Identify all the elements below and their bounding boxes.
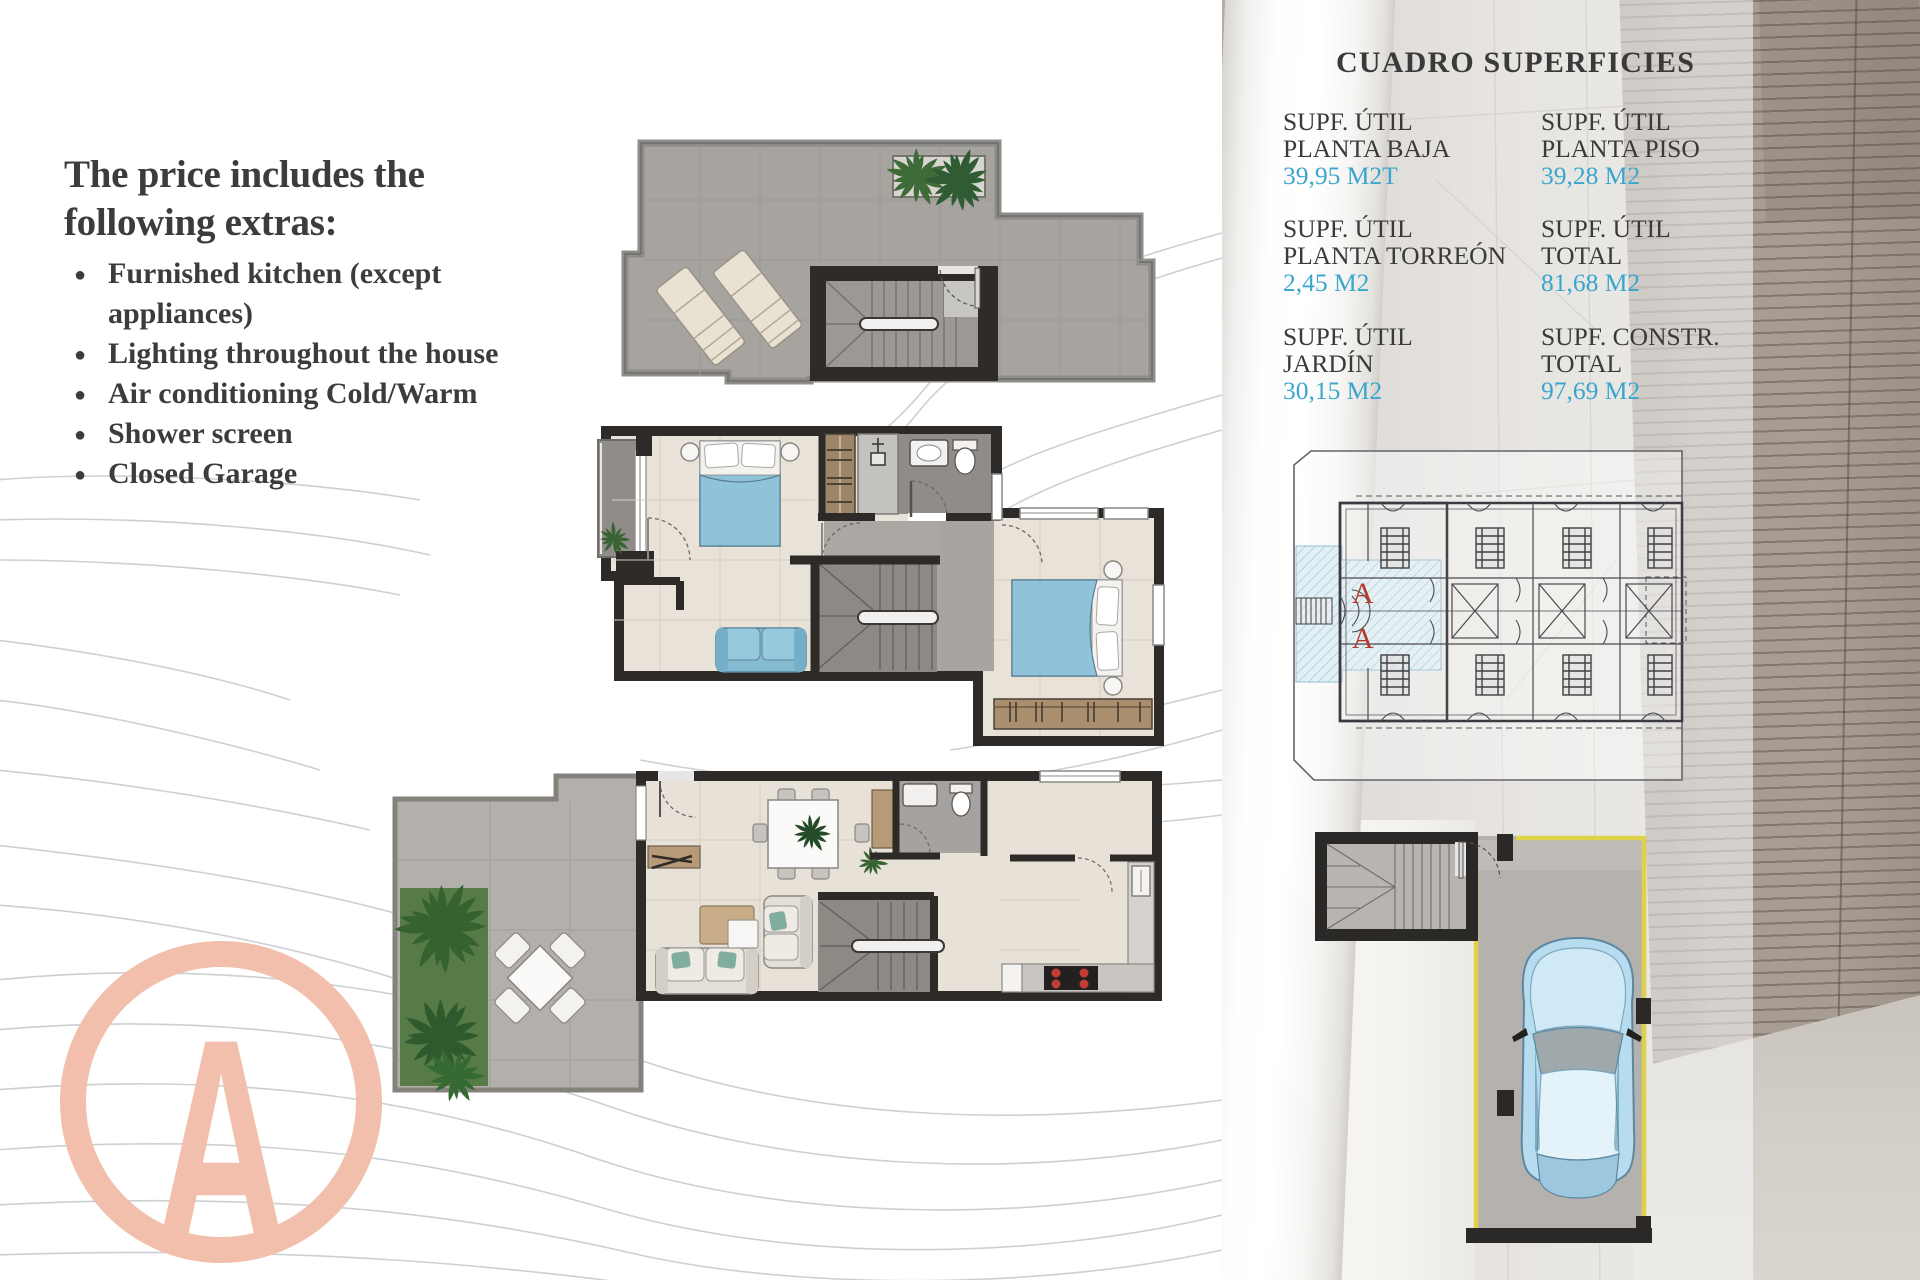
svg-text:A: A [154, 976, 288, 1280]
svg-text:A: A [1352, 577, 1374, 610]
svg-text:A: A [1352, 622, 1374, 655]
